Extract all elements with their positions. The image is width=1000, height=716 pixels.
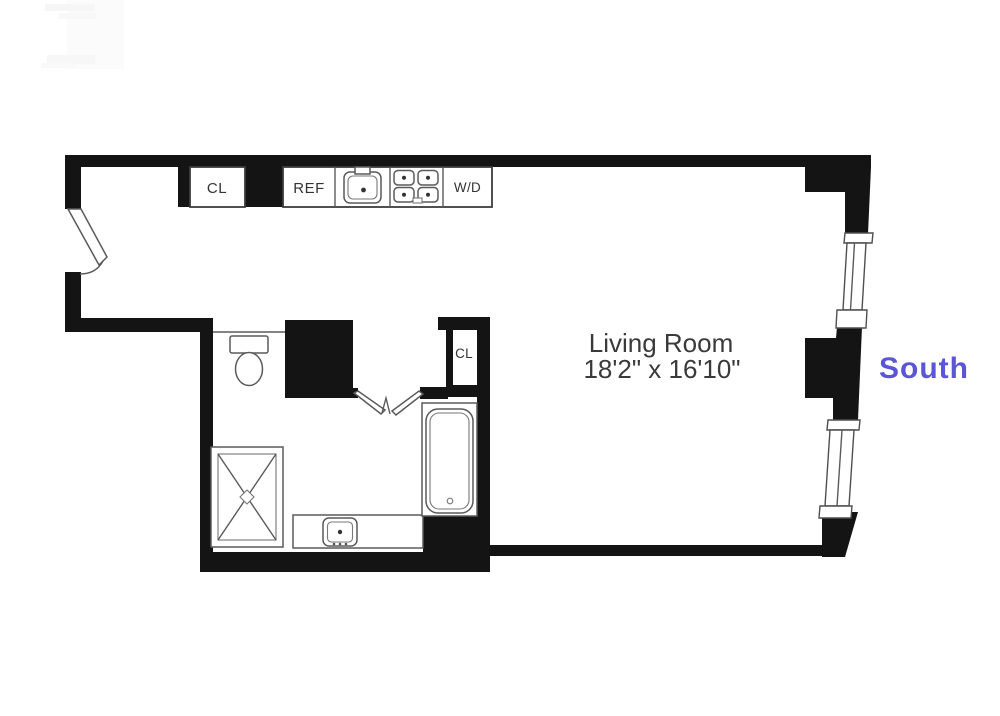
kitchen-closet: CL bbox=[190, 167, 245, 207]
toilet-icon bbox=[230, 336, 268, 386]
left-wall-upper bbox=[65, 155, 81, 209]
entry-bottom-wall bbox=[65, 318, 213, 332]
bath-closet-top-wall bbox=[438, 317, 490, 330]
kitchen-appliance-row: REF W/D bbox=[283, 167, 492, 207]
bath-closet-left-wall bbox=[446, 330, 453, 385]
south-label: South bbox=[879, 352, 969, 385]
living-room-dimensions: 18'2" x 16'10" bbox=[583, 354, 740, 384]
bath-door-leaf-left bbox=[354, 391, 385, 414]
kitchen-closet-label: CL bbox=[207, 180, 227, 197]
bath-livingroom-divider-wall bbox=[477, 318, 490, 558]
kitchen-divider-block bbox=[245, 155, 283, 207]
shower-icon bbox=[211, 447, 283, 547]
entry-door-leaf bbox=[68, 209, 107, 265]
window-lower bbox=[819, 420, 860, 518]
bath-door-leaf-right bbox=[392, 391, 423, 415]
floorplan-image: CL REF W/D bbox=[0, 0, 1000, 716]
scan-artifact bbox=[41, 0, 124, 69]
top-wall bbox=[65, 155, 871, 167]
toilet-side-wall-mass bbox=[285, 320, 353, 398]
kitchen-sink-icon bbox=[344, 167, 381, 203]
bath-closet-bottom-wall bbox=[446, 385, 490, 397]
livingroom-bottom-wall bbox=[490, 545, 835, 556]
bathtub-icon bbox=[422, 403, 477, 516]
door-jamb-right bbox=[420, 387, 448, 399]
right-window-pier bbox=[805, 327, 862, 420]
bathroom-double-door bbox=[354, 391, 423, 415]
top-right-step-wall bbox=[805, 167, 871, 234]
entry-door bbox=[68, 209, 107, 274]
washer-dryer-label: W/D bbox=[454, 180, 481, 195]
refrigerator-label: REF bbox=[293, 180, 325, 197]
bathroom-closet-label: CL bbox=[455, 346, 473, 361]
vanity-sink-icon bbox=[293, 515, 423, 548]
window-upper bbox=[836, 233, 873, 328]
kitchen-closet-left-wall bbox=[178, 167, 190, 207]
